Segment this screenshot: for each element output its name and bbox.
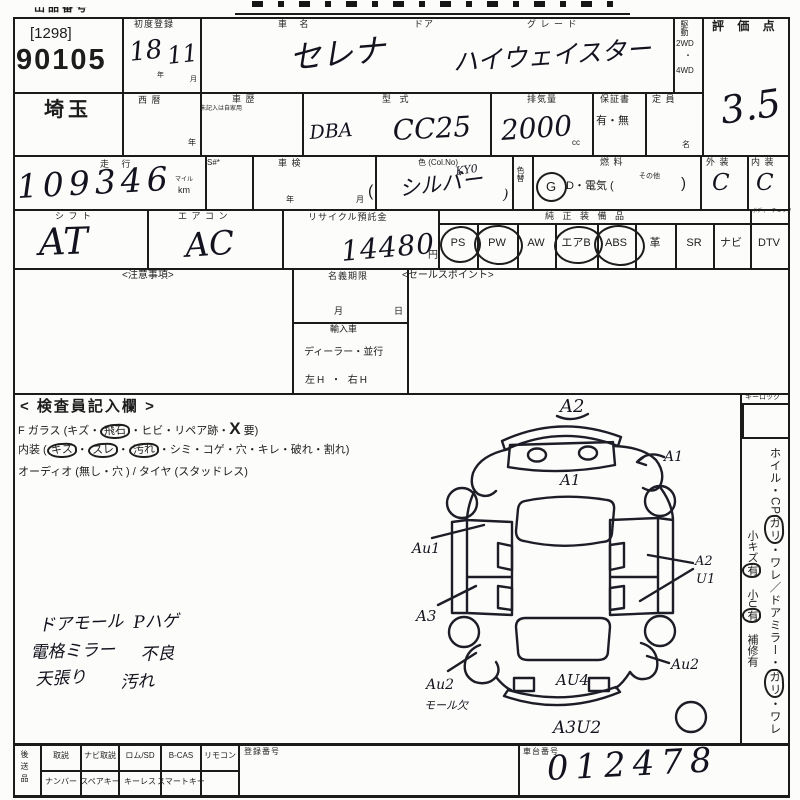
exterior-grade: C: [712, 172, 730, 195]
lot-header: 出品番号: [34, 7, 90, 14]
grid-line: [490, 92, 492, 155]
grid-line: [40, 770, 238, 772]
diagram-label-moulding-missing: モール欠: [424, 699, 470, 712]
equip-item-navi: ナビ: [720, 238, 742, 249]
diagram-label-a2-right: A2: [694, 554, 713, 569]
footer-bcas: B-CAS: [169, 752, 193, 760]
sidebar-text: ・ワレ: [769, 698, 781, 736]
caution-label: <注意事項>: [122, 271, 174, 281]
car-name-value: セレナ: [288, 34, 386, 74]
grid-line: [292, 268, 294, 393]
grid-line: [407, 268, 409, 393]
hood-detail: [528, 449, 546, 462]
mileage-value: 109346: [16, 162, 173, 203]
windshield: [516, 497, 614, 546]
grid-line: [673, 17, 675, 92]
glass-x-mark: X: [229, 419, 240, 438]
circled-yogore: 汚れ: [128, 442, 159, 459]
import-handle: 左H ・ 右H: [305, 376, 369, 386]
hand-circle: [535, 170, 569, 203]
note-headliner: 天張り: [35, 669, 87, 689]
diagram-label-au2-bottomright: Au2: [669, 657, 699, 673]
capacity-label: 定 員: [652, 95, 676, 104]
note-doormoulding: ドアモール: [38, 614, 124, 635]
sidebar-text: ホイル・CP: [769, 447, 781, 515]
front-bumper: [502, 426, 621, 450]
color-close-paren: ): [503, 188, 508, 202]
circled-ari: 有: [742, 607, 762, 623]
diagram-label-a3u2: A3U2: [551, 718, 601, 738]
inspector-glass-line: F ガラス (キズ・飛石・ヒビ・リペア跡・X 要): [18, 420, 258, 439]
circled-kizu: キズ: [46, 442, 77, 459]
grid-line: [40, 743, 42, 795]
grid-line: [742, 403, 790, 405]
left-front-wheel: [447, 488, 477, 518]
history-label: 車 歴: [232, 95, 256, 104]
grid-line: [200, 743, 202, 795]
diagram-label-au4: AU4: [554, 671, 589, 689]
grid-line: [13, 17, 15, 797]
first-reg-month: 11: [166, 41, 199, 68]
first-reg-year-unit: 年: [157, 72, 164, 79]
aircon-value: AC: [184, 226, 235, 262]
shift-value: AT: [38, 222, 89, 261]
door-label: ドア: [414, 20, 434, 29]
grid-line: [702, 17, 704, 155]
diagram-label-au2-bottomleft: Au2: [424, 677, 454, 693]
left-rear-wheel: [449, 617, 479, 647]
grid-line: [438, 209, 440, 268]
glass-text: F ガラス (キズ・: [18, 425, 100, 437]
recycle-value: 14480: [340, 230, 436, 266]
footer-remote: リモコン: [204, 752, 236, 760]
left-front-fender: [467, 449, 509, 519]
grade-label: グ レ ー ド: [527, 20, 578, 29]
equip-item-sr: SR: [686, 238, 701, 249]
inspector-audio-line: オーディオ (無し・穴 ) / タイヤ (スタッドレス): [18, 467, 248, 478]
color-value: シルバー: [398, 169, 484, 200]
clipped-title-marks: [252, 1, 622, 7]
grid-line: [742, 437, 790, 439]
grid-line: [512, 155, 514, 209]
lot-number: 90105: [16, 46, 107, 75]
equip-item-leather: 革: [650, 238, 661, 249]
shaken-paren: (: [368, 184, 373, 200]
import-label: 輸入車: [330, 325, 357, 334]
grid-line: [375, 155, 377, 209]
exterior-label: 外 装: [706, 158, 730, 167]
grid-line: [160, 743, 162, 795]
footer-spare-key: スペアキー: [80, 778, 119, 786]
glass-text: ・ヒビ・リペア跡・: [130, 425, 229, 437]
grade-value: ハイウェイスター: [452, 36, 652, 75]
equipment-corner-note: ボディーチェック: [752, 209, 792, 214]
grid-line: [532, 155, 534, 209]
circled-gari: ガリ: [763, 514, 784, 544]
footer-number-plate: ナンバー: [45, 778, 77, 786]
footer-reg-number-label: 登録番号: [244, 748, 280, 756]
inspector-interior-line: 内装 (キズ・スレ・汚れ・シミ・コゲ・穴・キレ・破れ・割れ): [18, 443, 349, 458]
grid-line: [645, 92, 647, 155]
grid-line: [302, 92, 304, 155]
displacement-value: 2000: [500, 112, 573, 145]
inspector-header: < 検査員記入欄 >: [20, 399, 156, 414]
grid-line: [788, 17, 790, 797]
model-label: 型 式: [382, 95, 412, 104]
grid-line: [252, 155, 254, 209]
diagram-label-au1: Au1: [410, 541, 440, 557]
hood-detail: [579, 447, 597, 460]
name-limit-month: 月: [334, 307, 343, 316]
history-note: 未記入は自家用: [200, 106, 242, 112]
grid-line: [200, 17, 202, 155]
note-mirror: 電格ミラー: [30, 642, 116, 662]
sidebar-text: ドアミラー・: [769, 594, 781, 669]
drive-2wd: 2WD: [676, 40, 694, 48]
color-change-label: 色替: [516, 166, 524, 182]
note-doormoulding-detail: Pハゲ: [133, 613, 179, 632]
footer-smart-key: スマートキー: [157, 778, 205, 786]
sidebar-text: 小キズ: [746, 530, 758, 563]
grid-line: [742, 403, 744, 437]
warranty-label: 保証書: [600, 95, 630, 104]
lot-header-clipped: 出品番号: [34, 7, 104, 17]
shaken-year: 年: [286, 196, 294, 204]
grid-line: [282, 209, 284, 268]
auction-sheet: 出品番号 [1298] 90105 初度登録 18 年 11 月 車 名 ドア …: [0, 0, 800, 800]
interior-text: ・シミ・コゲ・穴・キレ・破れ・割れ): [159, 444, 350, 456]
grid-line: [80, 743, 82, 795]
sales-point-label: <セールスポイント>: [402, 271, 494, 281]
displacement-unit: cc: [572, 139, 580, 147]
name-limit-day: 日: [394, 307, 403, 316]
grid-line: [713, 223, 715, 268]
diagram-label-u1-right: U1: [696, 572, 715, 587]
diagram-label-a1-right: A1: [662, 449, 683, 465]
fuel-label: 燃 料: [600, 158, 624, 167]
sidebar-wheel-note: ホイル・CPガリ・ワレ／ドアミラー・ガリ・ワレ: [764, 447, 784, 739]
note-headliner-detail: 汚れ: [120, 673, 155, 692]
grid-line: [747, 155, 749, 209]
grid-line: [13, 92, 702, 94]
s-mark: S#*: [207, 159, 220, 167]
grid-line: [700, 155, 702, 209]
rear-bumper: [504, 687, 620, 705]
sidebar-scratch-note: 小キズ有 小U有 補修有: [742, 530, 761, 740]
car-name-label: 車 名: [278, 20, 314, 29]
grid-line: [518, 743, 520, 795]
west-year-unit: 年: [188, 139, 196, 147]
grid-line: [750, 209, 752, 268]
prefecture: 埼玉: [44, 100, 92, 120]
footer-send-label: 後送品: [20, 750, 28, 786]
grid-line: [238, 743, 240, 795]
footer-navi-manual: ナビ取説: [84, 752, 116, 760]
shaken-month: 月: [356, 196, 364, 204]
displacement-label: 排気量: [527, 95, 557, 104]
glass-text: 要): [241, 425, 259, 437]
diagram-label-a1-center: A1: [558, 471, 580, 489]
grid-line: [13, 795, 790, 798]
sidebar-text: ・ワレ／: [769, 544, 781, 594]
import-dealer: ディーラー・並行: [304, 348, 383, 358]
sidebar-text: 小U: [746, 578, 758, 608]
equip-item-dtv: DTV: [758, 238, 780, 249]
diagram-label-a3: A3: [414, 607, 436, 625]
tail-light: [514, 678, 534, 691]
interior-text: ・: [118, 444, 129, 456]
footer-rom-sd: ロム/SD: [125, 752, 154, 760]
footer-chassis-number: 012478: [546, 743, 719, 786]
interior-text: 内装 (: [18, 444, 47, 456]
drive-label: 駆動: [680, 20, 688, 36]
aircon-label: エ ア コ ン: [178, 212, 229, 221]
color-label: 色 (Col.No): [418, 159, 458, 167]
title-rule: [235, 13, 630, 15]
right-rear-fender: [630, 643, 657, 679]
grid-line: [147, 209, 149, 268]
grid-line: [13, 209, 790, 211]
lot-tag: [1298]: [30, 26, 72, 41]
score-value: 3.5: [718, 84, 783, 130]
rear-hatch: [516, 618, 610, 660]
grid-line: [118, 743, 120, 795]
keylock-label: キーロック: [745, 394, 780, 401]
right-front-wheel: [645, 486, 675, 516]
footer-manual: 取説: [53, 752, 69, 760]
west-label: 西 暦: [138, 96, 162, 105]
grid-line: [122, 17, 124, 155]
footer-keyless: キーレス: [124, 778, 156, 786]
grid-line: [592, 92, 594, 155]
hand-circle: [592, 223, 646, 268]
equipment-label: 純 正 装 備 品: [545, 212, 627, 221]
score-label: 評 価 点: [712, 20, 780, 32]
interior-grade: C: [756, 172, 774, 195]
interior-label: 内 装: [751, 158, 775, 167]
mileage-km-unit: km: [178, 186, 190, 195]
fuel-close-paren: ): [681, 176, 686, 191]
circled-sure: スレ: [87, 442, 118, 459]
first-reg-month-unit: 月: [190, 76, 197, 83]
sidebar-text: 補修有: [746, 623, 758, 667]
note-mirror-detail: 不良: [140, 646, 175, 664]
circled-gari: ガリ: [763, 668, 784, 698]
drive-dot: ・: [684, 52, 692, 60]
hood-band: [508, 442, 615, 471]
fuel-other: その他: [639, 173, 660, 180]
grid-line: [675, 223, 677, 268]
warranty-options: 有・無: [596, 116, 629, 127]
name-limit-label: 名義期限: [328, 272, 368, 281]
circled-ari: 有: [742, 563, 762, 579]
model-prefix: DBA: [309, 121, 353, 143]
interior-text: ・: [77, 444, 88, 456]
car-damage-diagram: A2 A1 A1 Au1 A2 U1 A3 Au2 モール欠 AU4 Au2 A…: [410, 395, 740, 745]
first-reg-year: 18: [128, 37, 164, 66]
right-rear-wheel: [645, 616, 675, 646]
diagram-label-a2-top: A2: [558, 396, 584, 417]
shaken-label: 車 検: [278, 159, 302, 168]
model-value: CC25: [392, 113, 472, 145]
mileage-mile-unit: マイル: [175, 177, 193, 183]
capacity-unit: 名: [682, 141, 690, 149]
grid-line: [13, 155, 790, 157]
drive-4wd: 4WD: [676, 67, 694, 75]
recycle-label: リサイクル預託金: [308, 213, 388, 222]
inspector-stamp-circle: [676, 702, 706, 732]
fuel-options: D・電気 (: [566, 181, 614, 192]
circled-tobiishi: 飛石: [100, 423, 131, 440]
first-reg-label: 初度登録: [134, 20, 174, 29]
left-rear-fender: [465, 645, 499, 683]
equip-item-aw: AW: [527, 238, 544, 249]
